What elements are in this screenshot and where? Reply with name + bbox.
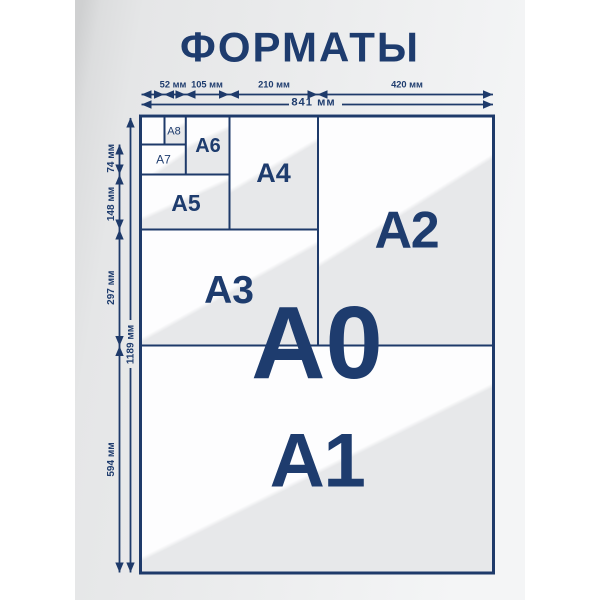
svg-text:А7: А7 xyxy=(156,153,171,167)
svg-text:А8: А8 xyxy=(167,126,180,138)
svg-text:148 мм: 148 мм xyxy=(106,187,117,221)
svg-text:А5: А5 xyxy=(171,190,201,216)
svg-text:1189 мм: 1189 мм xyxy=(126,325,137,364)
svg-text:74 мм: 74 мм xyxy=(106,144,117,173)
svg-text:А2: А2 xyxy=(375,202,439,260)
svg-text:420 мм: 420 мм xyxy=(391,80,423,90)
svg-text:297 мм: 297 мм xyxy=(106,271,117,305)
svg-text:А4: А4 xyxy=(256,158,291,188)
svg-text:А1: А1 xyxy=(270,419,365,504)
svg-text:841 мм: 841 мм xyxy=(291,97,335,109)
svg-text:ФОРМАТЫ: ФОРМАТЫ xyxy=(180,24,420,71)
svg-text:А6: А6 xyxy=(195,135,221,157)
svg-text:А0: А0 xyxy=(251,285,383,400)
svg-text:А3: А3 xyxy=(204,269,254,312)
svg-text:210 мм: 210 мм xyxy=(258,80,290,90)
svg-text:594 мм: 594 мм xyxy=(106,442,117,476)
svg-text:105 мм: 105 мм xyxy=(191,80,223,90)
svg-text:52 мм: 52 мм xyxy=(160,80,187,90)
